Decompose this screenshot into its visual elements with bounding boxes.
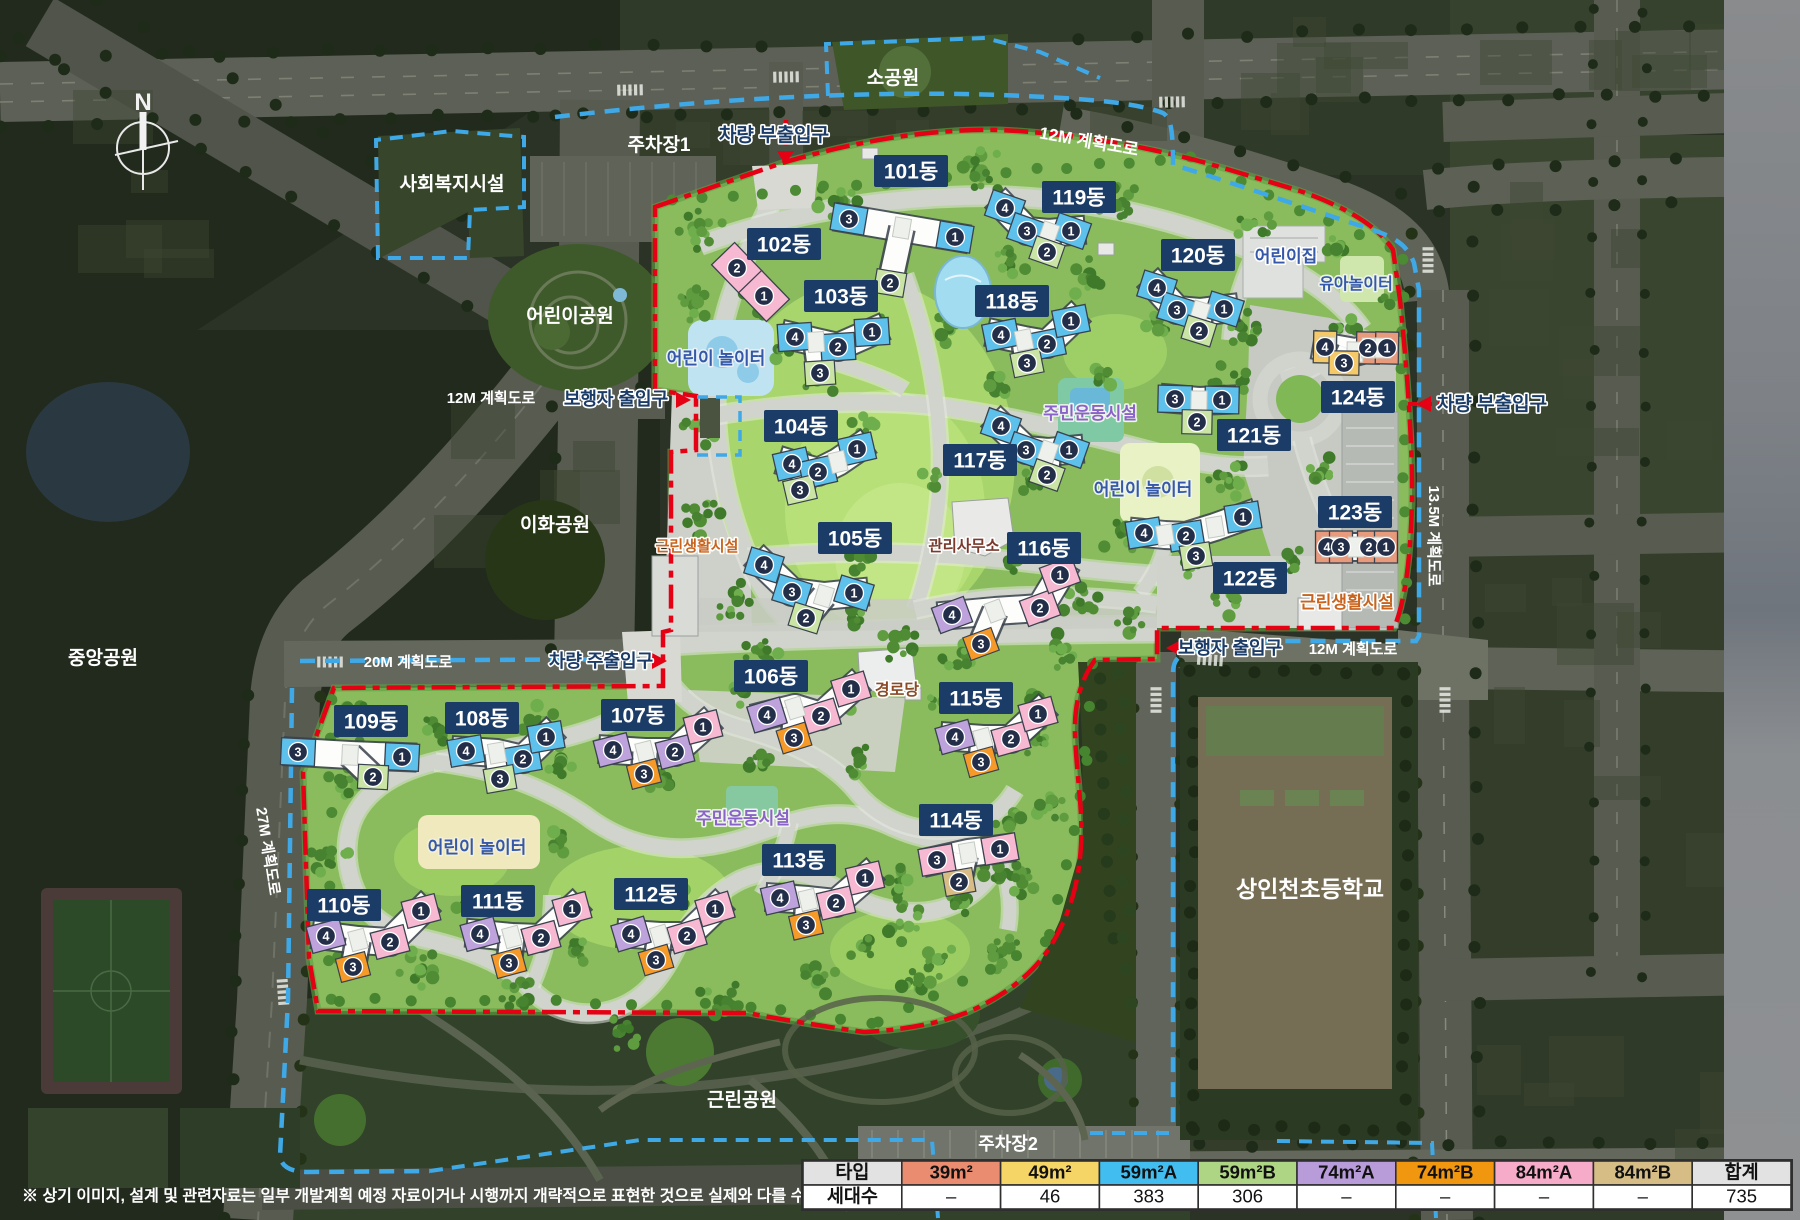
svg-text:108동: 108동 [455, 708, 509, 731]
svg-text:4: 4 [998, 419, 1005, 433]
svg-text:보행자 출입구: 보행자 출입구 [1178, 637, 1282, 658]
svg-text:1: 1 [869, 325, 876, 339]
svg-text:3: 3 [350, 960, 357, 974]
svg-text:3: 3 [653, 953, 660, 967]
svg-text:3: 3 [789, 585, 796, 599]
svg-text:2: 2 [1365, 341, 1372, 355]
svg-text:1: 1 [1035, 707, 1042, 721]
svg-text:118동: 118동 [985, 291, 1038, 314]
svg-text:3: 3 [1338, 540, 1345, 554]
svg-text:2: 2 [1183, 529, 1190, 543]
svg-text:1: 1 [862, 871, 869, 885]
svg-text:12M 계획도로: 12M 계획도로 [1309, 641, 1398, 658]
svg-text:3: 3 [803, 918, 810, 932]
svg-text:상인천초등학교: 상인천초등학교 [1236, 876, 1384, 902]
svg-text:2: 2 [520, 752, 527, 766]
svg-text:차량 부출입구: 차량 부출입구 [1437, 393, 1547, 415]
svg-text:1: 1 [1383, 540, 1390, 554]
svg-text:차량 주출입구: 차량 주출입구 [549, 650, 653, 671]
svg-text:1: 1 [1384, 341, 1391, 355]
svg-text:–: – [1341, 1186, 1352, 1207]
svg-text:4: 4 [610, 743, 617, 757]
svg-text:4: 4 [998, 328, 1005, 342]
svg-text:2: 2 [835, 340, 842, 354]
svg-text:3: 3 [1174, 303, 1181, 317]
svg-text:어린이집: 어린이집 [1255, 247, 1318, 266]
svg-text:84m²B: 84m²B [1615, 1162, 1672, 1183]
svg-text:124동: 124동 [1331, 387, 1385, 410]
svg-text:4: 4 [463, 744, 470, 758]
svg-text:113동: 113동 [772, 850, 825, 873]
svg-text:106동: 106동 [744, 666, 798, 689]
svg-text:3: 3 [497, 772, 504, 786]
svg-text:근린공원: 근린공원 [707, 1089, 777, 1111]
svg-text:3: 3 [1193, 549, 1200, 563]
svg-text:3: 3 [817, 366, 824, 380]
svg-text:2: 2 [818, 709, 825, 723]
svg-text:4: 4 [777, 891, 784, 905]
svg-text:3: 3 [295, 745, 302, 759]
svg-text:103동: 103동 [814, 286, 868, 309]
svg-text:306: 306 [1232, 1186, 1263, 1207]
svg-text:4: 4 [761, 558, 768, 572]
svg-text:어린이 놀이터: 어린이 놀이터 [428, 838, 527, 857]
svg-text:1: 1 [854, 442, 861, 456]
svg-text:2: 2 [387, 935, 394, 949]
svg-text:46: 46 [1040, 1186, 1061, 1207]
svg-text:보행자 출입구: 보행자 출입구 [564, 388, 668, 409]
svg-text:120동: 120동 [1171, 245, 1225, 268]
svg-text:1: 1 [1068, 314, 1075, 328]
svg-text:3: 3 [1023, 443, 1030, 457]
svg-text:경로당: 경로당 [875, 681, 919, 699]
svg-text:–: – [1638, 1186, 1649, 1207]
svg-text:12M 계획도로: 12M 계획도로 [447, 390, 536, 407]
svg-text:3: 3 [1172, 392, 1179, 406]
svg-text:4: 4 [764, 708, 771, 722]
svg-text:49m²: 49m² [1028, 1162, 1071, 1183]
svg-text:74m²A: 74m²A [1318, 1162, 1375, 1183]
svg-text:2: 2 [1044, 337, 1051, 351]
svg-text:4: 4 [1141, 526, 1148, 540]
svg-text:주차장2: 주차장2 [978, 1134, 1038, 1154]
svg-text:3: 3 [1024, 356, 1031, 370]
svg-text:어린이공원: 어린이공원 [526, 305, 613, 327]
svg-text:3: 3 [797, 483, 804, 497]
svg-text:2: 2 [1044, 245, 1051, 259]
svg-text:2: 2 [956, 875, 963, 889]
svg-text:1: 1 [399, 750, 406, 764]
svg-text:3: 3 [1024, 224, 1031, 238]
svg-text:4: 4 [1154, 281, 1161, 295]
svg-text:1: 1 [761, 289, 768, 303]
svg-text:102동: 102동 [757, 234, 811, 257]
svg-text:중앙공원: 중앙공원 [68, 647, 138, 669]
svg-text:2: 2 [684, 929, 691, 943]
svg-text:20M 계획도로: 20M 계획도로 [364, 654, 453, 671]
svg-text:1: 1 [997, 842, 1004, 856]
svg-text:N: N [134, 89, 151, 116]
svg-text:735: 735 [1726, 1186, 1757, 1207]
svg-text:관리사무소: 관리사무소 [928, 537, 999, 555]
svg-text:115동: 115동 [949, 688, 1002, 711]
svg-text:1: 1 [1219, 393, 1226, 407]
svg-text:합계: 합계 [1725, 1162, 1759, 1183]
svg-text:1: 1 [418, 904, 425, 918]
svg-text:1: 1 [569, 902, 576, 916]
svg-text:2: 2 [1008, 732, 1015, 746]
svg-text:1: 1 [848, 682, 855, 696]
svg-text:3: 3 [506, 956, 513, 970]
svg-text:4: 4 [1324, 540, 1331, 554]
svg-text:4: 4 [789, 457, 796, 471]
svg-text:1: 1 [712, 902, 719, 916]
svg-text:주차장1: 주차장1 [627, 134, 690, 156]
svg-text:세대수: 세대수 [827, 1186, 878, 1207]
svg-text:111동: 111동 [472, 891, 524, 914]
svg-text:타입: 타입 [835, 1162, 869, 1183]
svg-text:101동: 101동 [884, 161, 938, 184]
svg-text:–: – [1539, 1186, 1550, 1207]
svg-text:3: 3 [791, 731, 798, 745]
svg-text:3: 3 [978, 755, 985, 769]
svg-text:1: 1 [952, 230, 959, 244]
svg-text:3: 3 [934, 853, 941, 867]
svg-text:4: 4 [1322, 340, 1329, 354]
svg-text:주민운동시설: 주민운동시설 [1043, 404, 1137, 423]
svg-text:2: 2 [1044, 468, 1051, 482]
svg-text:4: 4 [792, 330, 799, 344]
svg-text:2: 2 [1366, 540, 1373, 554]
svg-text:39m²: 39m² [930, 1162, 973, 1183]
svg-text:117동: 117동 [953, 450, 1006, 473]
svg-text:114동: 114동 [929, 810, 982, 833]
svg-text:2: 2 [370, 770, 377, 784]
svg-text:123동: 123동 [1328, 502, 1382, 525]
svg-text:2: 2 [1196, 324, 1203, 338]
svg-text:74m²B: 74m²B [1417, 1162, 1474, 1183]
svg-text:4: 4 [628, 927, 635, 941]
svg-text:차량 부출입구: 차량 부출입구 [719, 124, 829, 146]
svg-text:어린이 놀이터: 어린이 놀이터 [1094, 480, 1193, 499]
svg-text:2: 2 [1194, 415, 1201, 429]
svg-text:107동: 107동 [611, 705, 665, 728]
svg-text:383: 383 [1133, 1186, 1164, 1207]
svg-text:1: 1 [1068, 224, 1075, 238]
svg-text:1: 1 [1221, 302, 1228, 316]
svg-text:104동: 104동 [774, 416, 828, 439]
svg-text:–: – [946, 1186, 957, 1207]
svg-text:2: 2 [672, 745, 679, 759]
svg-text:근린생활시설: 근린생활시설 [1300, 592, 1394, 612]
svg-text:1: 1 [1057, 568, 1064, 582]
svg-text:112동: 112동 [624, 884, 677, 907]
svg-text:59m²A: 59m²A [1121, 1162, 1178, 1183]
svg-text:4: 4 [952, 730, 959, 744]
svg-text:3: 3 [978, 637, 985, 651]
svg-text:13.5M 계획도로: 13.5M 계획도로 [1425, 485, 1442, 586]
svg-text:3: 3 [846, 212, 853, 226]
svg-text:109동: 109동 [344, 711, 398, 734]
svg-text:2: 2 [803, 611, 810, 625]
svg-text:이화공원: 이화공원 [520, 514, 590, 536]
svg-text:4: 4 [1002, 201, 1009, 215]
svg-text:59m²B: 59m²B [1219, 1162, 1276, 1183]
svg-text:4: 4 [477, 927, 484, 941]
svg-text:2: 2 [1037, 601, 1044, 615]
svg-text:4: 4 [949, 608, 956, 622]
svg-text:119동: 119동 [1052, 187, 1105, 210]
svg-text:3: 3 [641, 767, 648, 781]
svg-text:1: 1 [1066, 443, 1073, 457]
svg-text:소공원: 소공원 [867, 67, 919, 89]
svg-text:4: 4 [323, 929, 330, 943]
svg-text:121동: 121동 [1227, 425, 1281, 448]
svg-text:1: 1 [851, 586, 858, 600]
svg-text:2: 2 [734, 261, 741, 275]
svg-text:2: 2 [538, 931, 545, 945]
svg-text:122동: 122동 [1223, 568, 1277, 591]
svg-text:1: 1 [700, 720, 707, 734]
svg-text:105동: 105동 [828, 528, 882, 551]
svg-text:사회복지시설: 사회복지시설 [400, 173, 505, 195]
svg-text:2: 2 [815, 465, 822, 479]
svg-text:어린이 놀이터: 어린이 놀이터 [667, 349, 766, 368]
svg-text:주민운동시설: 주민운동시설 [696, 809, 790, 828]
svg-text:2: 2 [833, 896, 840, 910]
svg-text:유아놀이터: 유아놀이터 [1319, 275, 1393, 293]
svg-text:3: 3 [1341, 356, 1348, 370]
svg-text:1: 1 [1240, 510, 1247, 524]
svg-text:116동: 116동 [1017, 538, 1070, 561]
svg-text:근린생활시설: 근린생활시설 [656, 537, 739, 555]
svg-text:84m²A: 84m²A [1516, 1162, 1573, 1183]
svg-text:1: 1 [543, 730, 550, 744]
svg-text:2: 2 [887, 276, 894, 290]
svg-text:110동: 110동 [317, 895, 370, 918]
svg-text:–: – [1440, 1186, 1451, 1207]
svg-text:※ 상기 이미지, 설계 및 관련자료는 일부 개발계획 예: ※ 상기 이미지, 설계 및 관련자료는 일부 개발계획 예정 자료이거나 시행… [22, 1186, 873, 1205]
